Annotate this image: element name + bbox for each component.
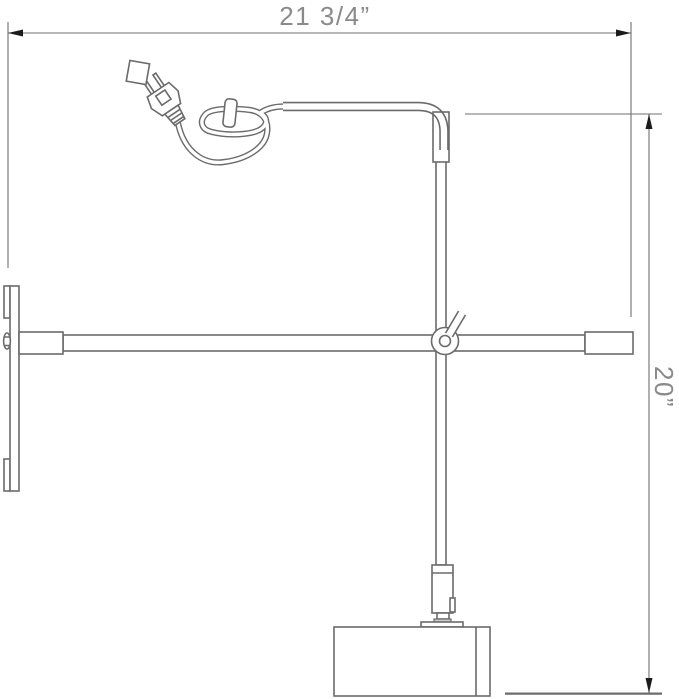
lamp-shade [334, 627, 490, 696]
bracket-screw-icon [4, 333, 11, 349]
arm-tube [63, 335, 585, 351]
dimension-height: 20” [465, 114, 679, 693]
top-tube-outline [283, 107, 444, 151]
bracket-tab-bottom [4, 459, 10, 491]
swing-arm [19, 332, 633, 354]
lamp-head-assembly [334, 565, 490, 696]
dimension-width: 21 3/4” [8, 1, 631, 317]
pole-shaft [436, 160, 446, 565]
swivel-hub-inner [440, 336, 451, 347]
arrowhead-left-icon [8, 30, 23, 37]
cord-wrap-band [223, 98, 238, 127]
top-tube-body [283, 107, 444, 151]
arm-ferrule-left [19, 332, 63, 354]
dimension-width-label: 21 3/4” [279, 1, 370, 31]
vertical-pole [436, 160, 446, 565]
cord-tag [126, 60, 149, 84]
neck [437, 613, 449, 619]
bracket-plate [10, 286, 19, 491]
arrowhead-up-icon [646, 114, 653, 129]
technical-drawing: 21 3/4” 20” [0, 0, 679, 699]
top-arm-assembly [283, 107, 449, 163]
wall-bracket [4, 286, 19, 491]
arrowhead-right-icon [616, 30, 631, 37]
lamp-drawing-svg: 21 3/4” 20” [0, 0, 679, 699]
power-cord-assembly [126, 60, 283, 162]
sleeve-catch [450, 598, 455, 612]
arrowhead-down-icon [646, 678, 653, 693]
bracket-tab-top [4, 286, 10, 318]
dimension-height-label: 20” [649, 366, 679, 408]
arm-ferrule-right [585, 332, 633, 354]
